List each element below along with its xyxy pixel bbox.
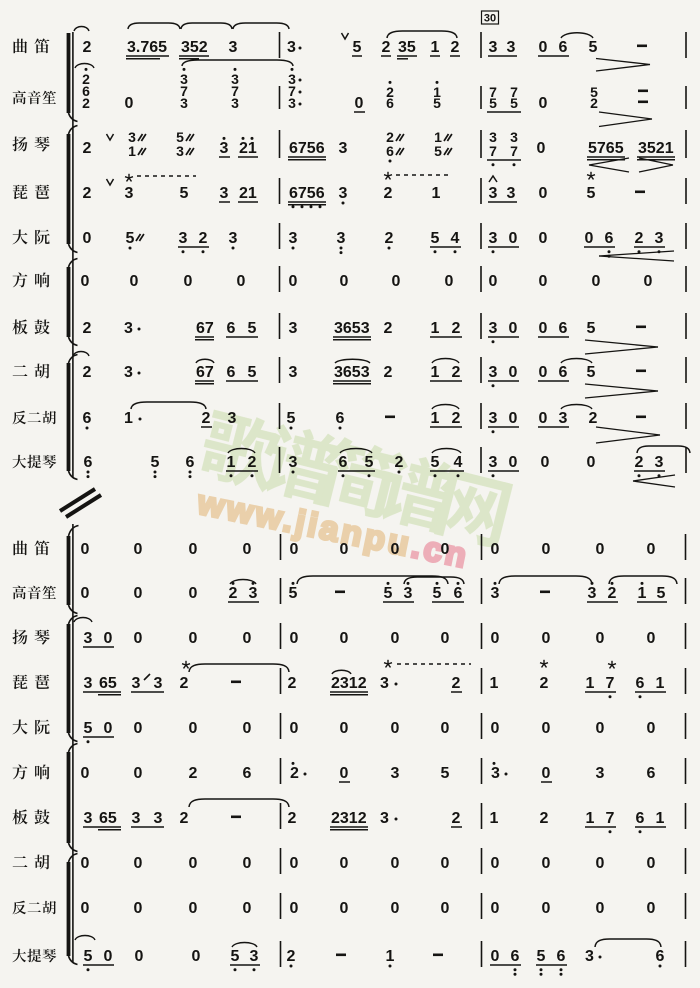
svg-text:0: 0 xyxy=(391,541,400,558)
svg-text:3: 3 xyxy=(404,585,413,602)
svg-text:2: 2 xyxy=(248,454,257,471)
svg-text:7: 7 xyxy=(606,675,615,692)
svg-text:5: 5 xyxy=(537,948,546,965)
svg-text:6: 6 xyxy=(647,765,656,782)
svg-text:0: 0 xyxy=(509,454,518,471)
svg-text:5: 5 xyxy=(126,230,135,247)
svg-text:0: 0 xyxy=(596,630,605,647)
svg-text:6756: 6756 xyxy=(289,185,325,202)
svg-text:0: 0 xyxy=(509,364,518,381)
svg-text:3: 3 xyxy=(380,675,389,692)
svg-text:2: 2 xyxy=(83,185,92,202)
svg-text:5: 5 xyxy=(353,39,362,56)
svg-text:0: 0 xyxy=(104,720,113,737)
svg-text:0: 0 xyxy=(290,541,299,558)
svg-text:3: 3 xyxy=(154,810,163,827)
svg-text:0: 0 xyxy=(539,39,548,56)
svg-text:0: 0 xyxy=(184,273,193,290)
svg-text:5: 5 xyxy=(489,95,497,111)
svg-text:2: 2 xyxy=(635,454,644,471)
svg-text:0: 0 xyxy=(81,273,90,290)
svg-text:3: 3 xyxy=(491,765,500,782)
svg-text:0: 0 xyxy=(539,230,548,247)
svg-text:5: 5 xyxy=(431,454,440,471)
svg-text:0: 0 xyxy=(135,948,144,965)
svg-text:0: 0 xyxy=(539,364,548,381)
svg-text:2: 2 xyxy=(395,454,404,471)
svg-text:2: 2 xyxy=(180,810,189,827)
svg-text:1: 1 xyxy=(656,675,665,692)
svg-text:0: 0 xyxy=(340,855,349,872)
svg-text:2: 2 xyxy=(288,675,297,692)
svg-text:0: 0 xyxy=(491,855,500,872)
svg-text:0: 0 xyxy=(189,720,198,737)
svg-text:3: 3 xyxy=(559,410,568,427)
svg-text:0: 0 xyxy=(647,855,656,872)
svg-text:6: 6 xyxy=(243,765,252,782)
svg-text:3: 3 xyxy=(132,675,141,692)
svg-text:0: 0 xyxy=(81,765,90,782)
svg-text:0: 0 xyxy=(539,273,548,290)
svg-text:0: 0 xyxy=(585,230,594,247)
svg-text:5: 5 xyxy=(84,720,93,737)
svg-text:5: 5 xyxy=(589,39,598,56)
svg-text:3: 3 xyxy=(585,948,594,965)
svg-text:0: 0 xyxy=(491,900,500,917)
svg-text:0: 0 xyxy=(539,410,548,427)
svg-text:0: 0 xyxy=(290,855,299,872)
svg-text:0: 0 xyxy=(189,900,198,917)
svg-text:0: 0 xyxy=(243,855,252,872)
svg-text:0: 0 xyxy=(391,720,400,737)
svg-text:0: 0 xyxy=(340,273,349,290)
svg-text:3: 3 xyxy=(84,630,93,647)
svg-text:1: 1 xyxy=(431,320,440,337)
svg-text:6: 6 xyxy=(386,143,394,159)
svg-text:67: 67 xyxy=(196,320,214,337)
svg-text:1: 1 xyxy=(431,364,440,381)
svg-text:3: 3 xyxy=(250,948,259,965)
svg-text:3: 3 xyxy=(154,675,163,692)
svg-text:0: 0 xyxy=(189,541,198,558)
svg-text:0: 0 xyxy=(541,454,550,471)
svg-text:3: 3 xyxy=(489,230,498,247)
svg-text:0: 0 xyxy=(290,720,299,737)
svg-text:30: 30 xyxy=(484,13,496,25)
svg-text:3: 3 xyxy=(489,364,498,381)
svg-text:0: 0 xyxy=(441,541,450,558)
svg-text:5: 5 xyxy=(434,143,442,159)
svg-text:3653: 3653 xyxy=(334,364,370,381)
svg-text:0: 0 xyxy=(189,630,198,647)
svg-text:0: 0 xyxy=(340,765,349,782)
svg-text:3: 3 xyxy=(220,185,229,202)
svg-text:0: 0 xyxy=(647,720,656,737)
svg-text:1: 1 xyxy=(128,143,136,159)
svg-text:5: 5 xyxy=(231,948,240,965)
svg-text:0: 0 xyxy=(340,541,349,558)
svg-text:2: 2 xyxy=(452,320,461,337)
svg-text:3: 3 xyxy=(84,810,93,827)
svg-text:0: 0 xyxy=(542,541,551,558)
svg-text:2: 2 xyxy=(635,230,644,247)
svg-text:6756: 6756 xyxy=(289,140,325,157)
svg-text:0: 0 xyxy=(237,273,246,290)
svg-text:7: 7 xyxy=(489,143,497,159)
svg-text:2: 2 xyxy=(83,140,92,157)
svg-text:3: 3 xyxy=(84,675,93,692)
svg-text:2: 2 xyxy=(287,948,296,965)
svg-text:2312: 2312 xyxy=(331,810,367,827)
svg-text:5: 5 xyxy=(441,765,450,782)
svg-text:0: 0 xyxy=(491,630,500,647)
svg-text:3: 3 xyxy=(124,320,133,337)
svg-text:2: 2 xyxy=(384,320,393,337)
svg-text:0: 0 xyxy=(81,541,90,558)
svg-text:3: 3 xyxy=(124,364,133,381)
svg-text:7: 7 xyxy=(510,143,518,159)
svg-text:6: 6 xyxy=(656,948,665,965)
svg-text:6: 6 xyxy=(454,585,463,602)
svg-text:6: 6 xyxy=(339,454,348,471)
svg-text:0: 0 xyxy=(134,855,143,872)
svg-text:2: 2 xyxy=(288,810,297,827)
svg-text:1: 1 xyxy=(586,810,595,827)
svg-text:1: 1 xyxy=(490,675,499,692)
svg-text:0: 0 xyxy=(340,900,349,917)
svg-text:0: 0 xyxy=(134,720,143,737)
svg-text:0: 0 xyxy=(81,855,90,872)
svg-text:0: 0 xyxy=(243,541,252,558)
svg-text:3: 3 xyxy=(655,230,664,247)
svg-text:0: 0 xyxy=(491,720,500,737)
svg-text:6: 6 xyxy=(336,410,345,427)
svg-text:0: 0 xyxy=(596,720,605,737)
svg-text:0: 0 xyxy=(340,720,349,737)
svg-text:2: 2 xyxy=(189,765,198,782)
svg-text:1: 1 xyxy=(638,585,647,602)
svg-text:3: 3 xyxy=(249,585,258,602)
svg-text:21: 21 xyxy=(239,140,257,157)
svg-text:3: 3 xyxy=(489,410,498,427)
svg-text:3: 3 xyxy=(220,140,229,157)
svg-text:6: 6 xyxy=(636,810,645,827)
svg-text:0: 0 xyxy=(596,855,605,872)
svg-text:2: 2 xyxy=(540,675,549,692)
svg-text:2: 2 xyxy=(229,585,238,602)
svg-text:3: 3 xyxy=(289,364,298,381)
svg-text:0: 0 xyxy=(83,230,92,247)
svg-text:0: 0 xyxy=(489,273,498,290)
svg-text:2: 2 xyxy=(540,810,549,827)
svg-text:0: 0 xyxy=(509,320,518,337)
svg-text:6: 6 xyxy=(605,230,614,247)
svg-text:3: 3 xyxy=(489,39,498,56)
svg-text:2: 2 xyxy=(589,410,598,427)
svg-text:0: 0 xyxy=(491,948,500,965)
svg-text:0: 0 xyxy=(542,765,551,782)
svg-text:3: 3 xyxy=(339,185,348,202)
svg-text:5: 5 xyxy=(384,585,393,602)
svg-text:3: 3 xyxy=(125,185,134,202)
svg-text:65: 65 xyxy=(99,675,117,692)
svg-text:0: 0 xyxy=(134,900,143,917)
svg-text:3: 3 xyxy=(288,95,296,111)
svg-text:2: 2 xyxy=(452,410,461,427)
svg-text:0: 0 xyxy=(445,273,454,290)
svg-text:2: 2 xyxy=(290,765,299,782)
svg-text:3: 3 xyxy=(339,140,348,157)
svg-text:0: 0 xyxy=(592,273,601,290)
svg-text:2: 2 xyxy=(384,185,393,202)
svg-text:3: 3 xyxy=(489,185,498,202)
svg-text:3: 3 xyxy=(132,810,141,827)
svg-text:5: 5 xyxy=(365,454,374,471)
svg-text:0: 0 xyxy=(596,900,605,917)
svg-text:0: 0 xyxy=(391,630,400,647)
svg-text:6: 6 xyxy=(186,454,195,471)
svg-text:0: 0 xyxy=(542,630,551,647)
svg-text:2: 2 xyxy=(82,95,90,111)
svg-text:6: 6 xyxy=(511,948,520,965)
svg-text:3: 3 xyxy=(655,454,664,471)
svg-text:0: 0 xyxy=(192,948,201,965)
svg-text:1: 1 xyxy=(432,185,441,202)
svg-text:5: 5 xyxy=(151,454,160,471)
svg-text:0: 0 xyxy=(509,410,518,427)
svg-text:2: 2 xyxy=(385,230,394,247)
svg-text:7: 7 xyxy=(606,810,615,827)
svg-text:3: 3 xyxy=(507,39,516,56)
svg-text:1: 1 xyxy=(490,810,499,827)
svg-text:0: 0 xyxy=(340,630,349,647)
svg-text:2: 2 xyxy=(384,364,393,381)
svg-text:6: 6 xyxy=(559,364,568,381)
svg-text:1: 1 xyxy=(586,675,595,692)
svg-text:6: 6 xyxy=(636,675,645,692)
svg-text:0: 0 xyxy=(243,630,252,647)
svg-text:2312: 2312 xyxy=(331,675,367,692)
svg-text:5: 5 xyxy=(587,185,596,202)
svg-text:0: 0 xyxy=(189,855,198,872)
svg-text:0: 0 xyxy=(289,273,298,290)
svg-text:0: 0 xyxy=(441,630,450,647)
svg-text:0: 0 xyxy=(392,273,401,290)
svg-text:3: 3 xyxy=(289,230,298,247)
svg-text:6: 6 xyxy=(83,410,92,427)
svg-text:0: 0 xyxy=(134,630,143,647)
svg-text:0: 0 xyxy=(134,585,143,602)
svg-text:5: 5 xyxy=(657,585,666,602)
svg-text:6: 6 xyxy=(559,320,568,337)
svg-text:5: 5 xyxy=(433,585,442,602)
svg-text:3: 3 xyxy=(489,454,498,471)
svg-text:3: 3 xyxy=(588,585,597,602)
svg-text:0: 0 xyxy=(134,541,143,558)
svg-text:2: 2 xyxy=(590,95,598,111)
svg-text:3.765: 3.765 xyxy=(127,39,167,56)
svg-text:2: 2 xyxy=(199,230,208,247)
svg-text:3: 3 xyxy=(287,39,296,56)
svg-text:3: 3 xyxy=(228,410,237,427)
svg-text:1: 1 xyxy=(656,810,665,827)
svg-text:2: 2 xyxy=(382,39,391,56)
svg-text:1: 1 xyxy=(227,454,236,471)
svg-text:6: 6 xyxy=(227,364,236,381)
svg-text:2: 2 xyxy=(608,585,617,602)
svg-text:2: 2 xyxy=(83,364,92,381)
svg-text:6: 6 xyxy=(84,454,93,471)
svg-text:67: 67 xyxy=(196,364,214,381)
svg-text:3: 3 xyxy=(176,143,184,159)
svg-text:6: 6 xyxy=(557,948,566,965)
svg-text:5: 5 xyxy=(289,585,298,602)
svg-text:3: 3 xyxy=(337,230,346,247)
svg-text:5: 5 xyxy=(180,185,189,202)
svg-text:0: 0 xyxy=(243,720,252,737)
svg-text:0: 0 xyxy=(491,541,500,558)
svg-text:6: 6 xyxy=(386,95,394,111)
svg-text:0: 0 xyxy=(290,900,299,917)
svg-text:0: 0 xyxy=(441,855,450,872)
svg-text:0: 0 xyxy=(104,630,113,647)
svg-text:5: 5 xyxy=(287,410,296,427)
svg-text:2: 2 xyxy=(83,320,92,337)
svg-text:0: 0 xyxy=(391,900,400,917)
svg-text:0: 0 xyxy=(290,630,299,647)
svg-text:2: 2 xyxy=(451,39,460,56)
svg-text:3: 3 xyxy=(380,810,389,827)
svg-text:2: 2 xyxy=(180,675,189,692)
svg-text:0: 0 xyxy=(542,720,551,737)
svg-text:65: 65 xyxy=(99,810,117,827)
svg-text:5: 5 xyxy=(510,95,518,111)
svg-text:0: 0 xyxy=(441,900,450,917)
svg-text:0: 0 xyxy=(134,765,143,782)
svg-text:1: 1 xyxy=(386,948,395,965)
svg-text:2: 2 xyxy=(202,410,211,427)
svg-text:5: 5 xyxy=(433,95,441,111)
svg-text:3: 3 xyxy=(289,320,298,337)
svg-text:5: 5 xyxy=(587,364,596,381)
svg-text:0: 0 xyxy=(596,541,605,558)
svg-text:2: 2 xyxy=(452,810,461,827)
svg-text:2: 2 xyxy=(83,39,92,56)
svg-text:0: 0 xyxy=(539,95,548,112)
svg-text:0: 0 xyxy=(81,585,90,602)
svg-text:2: 2 xyxy=(452,364,461,381)
svg-text:0: 0 xyxy=(647,900,656,917)
svg-text:5: 5 xyxy=(84,948,93,965)
svg-text:0: 0 xyxy=(587,454,596,471)
svg-text:0: 0 xyxy=(125,95,134,112)
svg-text:1: 1 xyxy=(124,410,133,427)
svg-text:352: 352 xyxy=(181,39,208,56)
svg-text:0: 0 xyxy=(441,720,450,737)
svg-text:0: 0 xyxy=(81,900,90,917)
svg-text:0: 0 xyxy=(537,140,546,157)
svg-text:3: 3 xyxy=(229,230,238,247)
svg-text:3: 3 xyxy=(179,230,188,247)
svg-text:0: 0 xyxy=(391,855,400,872)
svg-text:3: 3 xyxy=(391,765,400,782)
svg-text:0: 0 xyxy=(189,585,198,602)
svg-text:0: 0 xyxy=(542,900,551,917)
svg-text:5: 5 xyxy=(248,320,257,337)
svg-text:3: 3 xyxy=(229,39,238,56)
svg-text:0: 0 xyxy=(539,320,548,337)
svg-text:0: 0 xyxy=(647,630,656,647)
svg-text:3: 3 xyxy=(231,95,239,111)
svg-text:3: 3 xyxy=(489,320,498,337)
svg-text:5: 5 xyxy=(431,230,440,247)
svg-text:0: 0 xyxy=(243,900,252,917)
svg-text:5: 5 xyxy=(248,364,257,381)
svg-text:21: 21 xyxy=(239,185,257,202)
svg-text:3: 3 xyxy=(507,185,516,202)
svg-text:0: 0 xyxy=(509,230,518,247)
svg-text:0: 0 xyxy=(542,855,551,872)
svg-text:35: 35 xyxy=(398,39,416,56)
svg-text:5: 5 xyxy=(587,320,596,337)
svg-text:0: 0 xyxy=(647,541,656,558)
svg-text:3: 3 xyxy=(596,765,605,782)
svg-text:1: 1 xyxy=(431,410,440,427)
svg-text:3: 3 xyxy=(289,454,298,471)
svg-text:3: 3 xyxy=(180,95,188,111)
svg-text:3521: 3521 xyxy=(638,140,674,157)
svg-text:0: 0 xyxy=(644,273,653,290)
svg-text:1: 1 xyxy=(431,39,440,56)
svg-text:4: 4 xyxy=(454,454,463,471)
svg-text:0: 0 xyxy=(539,185,548,202)
svg-text:4: 4 xyxy=(451,230,460,247)
svg-text:0: 0 xyxy=(104,948,113,965)
svg-text:5765: 5765 xyxy=(588,140,624,157)
svg-text:3: 3 xyxy=(491,585,500,602)
svg-text:0: 0 xyxy=(355,95,364,112)
svg-text:6: 6 xyxy=(559,39,568,56)
svg-text:3653: 3653 xyxy=(334,320,370,337)
svg-text:6: 6 xyxy=(227,320,236,337)
svg-text:0: 0 xyxy=(130,273,139,290)
svg-text:2: 2 xyxy=(452,675,461,692)
